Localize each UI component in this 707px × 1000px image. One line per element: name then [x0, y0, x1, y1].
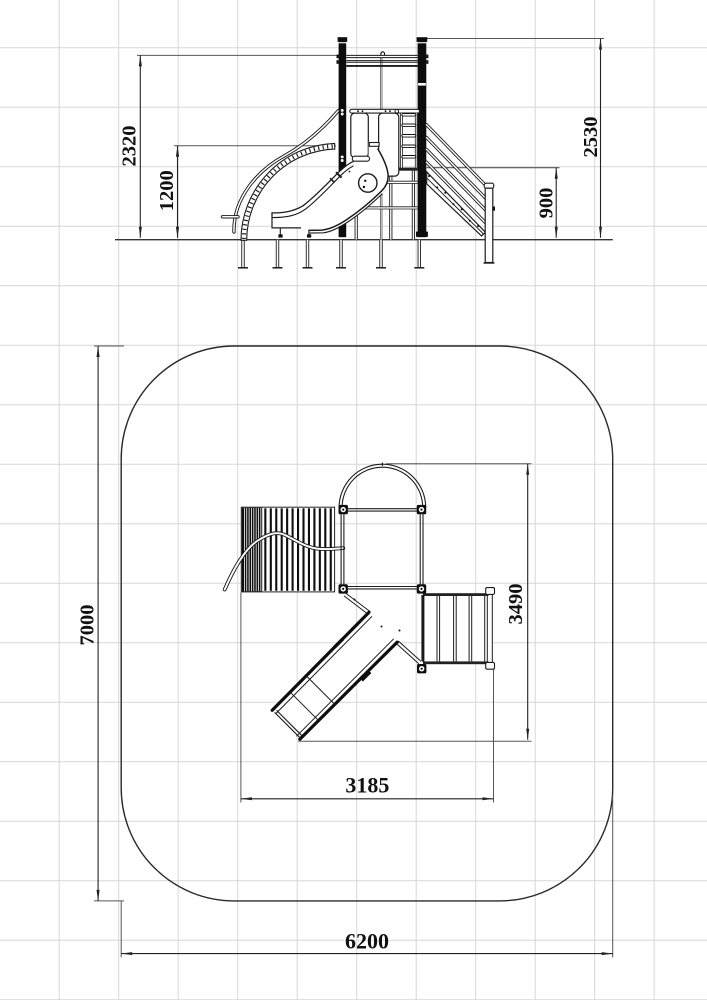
- svg-text:900: 900: [536, 188, 558, 219]
- svg-text:2320: 2320: [119, 126, 141, 167]
- svg-text:3185: 3185: [345, 773, 389, 798]
- svg-text:3490: 3490: [505, 584, 527, 625]
- svg-text:6200: 6200: [345, 928, 389, 953]
- svg-text:7000: 7000: [76, 605, 98, 646]
- svg-text:2530: 2530: [580, 117, 602, 158]
- svg-text:1200: 1200: [156, 170, 178, 211]
